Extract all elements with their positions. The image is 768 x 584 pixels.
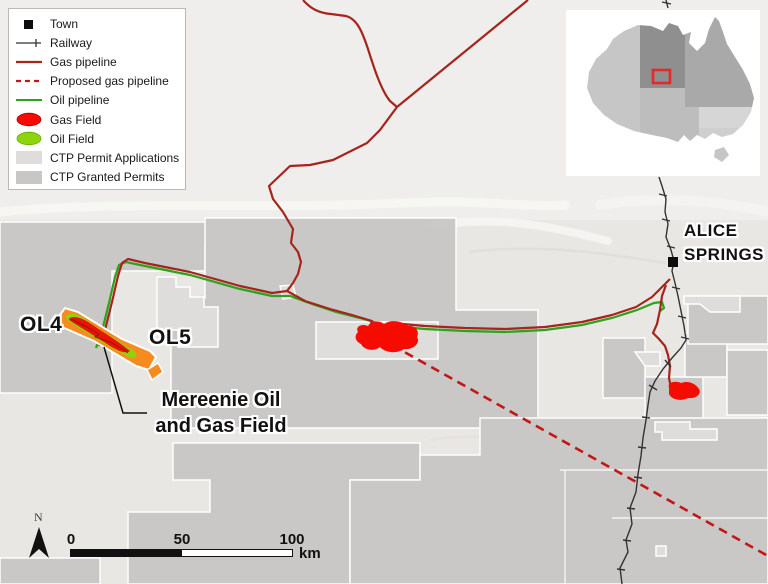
label-ol5: OL5	[149, 326, 191, 350]
scale-unit: km	[299, 545, 321, 562]
label-alice-springs: ALICE SPRINGS	[684, 219, 764, 267]
proposed-gas-pipeline-swatch-icon	[14, 74, 44, 88]
scale-tick-50: 50	[174, 531, 191, 548]
legend-label: Railway	[50, 36, 92, 50]
town-swatch-icon	[14, 17, 44, 31]
legend-row-gas-pipeline: Gas pipeline	[14, 52, 179, 71]
north-label: N	[34, 510, 43, 525]
legend-label: Proposed gas pipeline	[50, 74, 169, 88]
map-canvas: OL4 OL5 Mereenie Oil and Gas Field ALICE…	[0, 0, 768, 584]
legend-label: Gas pipeline	[50, 55, 117, 69]
legend-label: Oil Field	[50, 132, 94, 146]
legend-label: Town	[50, 17, 78, 31]
australia-inset-graphics	[566, 10, 760, 176]
label-alice-line1: ALICE	[684, 219, 764, 243]
legend-row-town: Town	[14, 14, 179, 33]
label-mereenie-line2: and Gas Field	[150, 413, 292, 439]
ctp-granted-swatch-icon	[14, 170, 44, 185]
legend-row-proposed-gas-pipeline: Proposed gas pipeline	[14, 72, 179, 91]
gas-field-swatch-icon	[14, 112, 44, 127]
australia-inset-map	[566, 10, 760, 176]
tasmania-shape	[714, 147, 729, 162]
railway-swatch-icon	[14, 36, 44, 50]
legend-row-gas-field: Gas Field	[14, 110, 179, 129]
legend-box: Town Railway Gas pipeline Proposed gas p…	[8, 8, 186, 190]
north-indicator: N	[30, 510, 54, 562]
legend-row-ctp-applications: CTP Permit Applications	[14, 148, 179, 167]
legend-row-oil-pipeline: Oil pipeline	[14, 91, 179, 110]
oil-pipeline-swatch-icon	[14, 93, 44, 107]
legend-row-oil-field: Oil Field	[14, 129, 179, 148]
legend-row-railway: Railway	[14, 33, 179, 52]
label-mereenie-line1: Mereenie Oil	[150, 387, 292, 413]
legend-label: CTP Granted Permits	[50, 170, 164, 184]
legend-label: Gas Field	[50, 113, 101, 127]
legend-label: CTP Permit Applications	[50, 151, 179, 165]
scale-tick-0: 0	[67, 531, 75, 548]
scale-bar-filled-half	[71, 550, 182, 556]
australia-states	[566, 10, 760, 176]
gas-pipeline-swatch-icon	[14, 55, 44, 69]
ctp-applications-swatch-icon	[14, 150, 44, 165]
label-mereenie: Mereenie Oil and Gas Field	[150, 387, 292, 439]
scale-bar-rule	[70, 549, 293, 557]
label-alice-line2: SPRINGS	[684, 243, 764, 267]
legend-label: Oil pipeline	[50, 93, 109, 107]
legend-row-ctp-granted: CTP Granted Permits	[14, 168, 179, 187]
alice-springs-town-marker	[668, 257, 678, 267]
label-ol4: OL4	[20, 313, 62, 337]
oil-field-swatch-icon	[14, 131, 44, 146]
